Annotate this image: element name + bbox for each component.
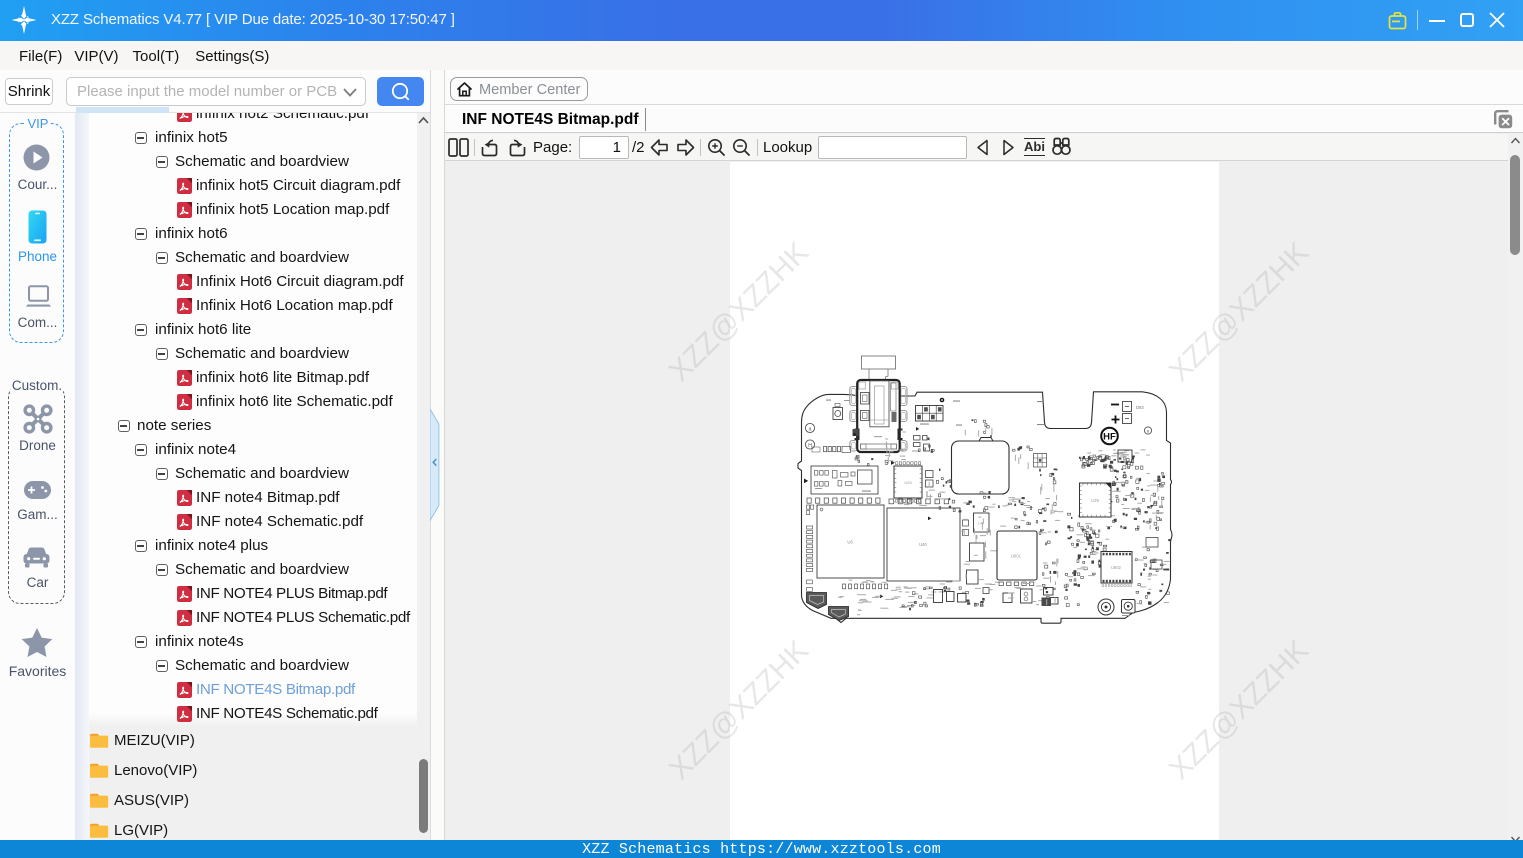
svg-text:U6: U6 [847, 540, 853, 545]
svg-text:U40: U40 [919, 542, 927, 547]
svg-text:U53: U53 [904, 480, 912, 485]
svg-text:U39: U39 [1091, 498, 1099, 503]
svg-text:D93: D93 [1136, 405, 1144, 410]
svg-text:U602: U602 [1111, 565, 1122, 570]
svg-text:H: H [808, 443, 812, 449]
svg-text:U601: U601 [1011, 554, 1022, 559]
svg-text:HF: HF [1103, 432, 1116, 443]
svg-text:a: a [809, 426, 812, 432]
svg-text:U50: U50 [1122, 455, 1129, 459]
